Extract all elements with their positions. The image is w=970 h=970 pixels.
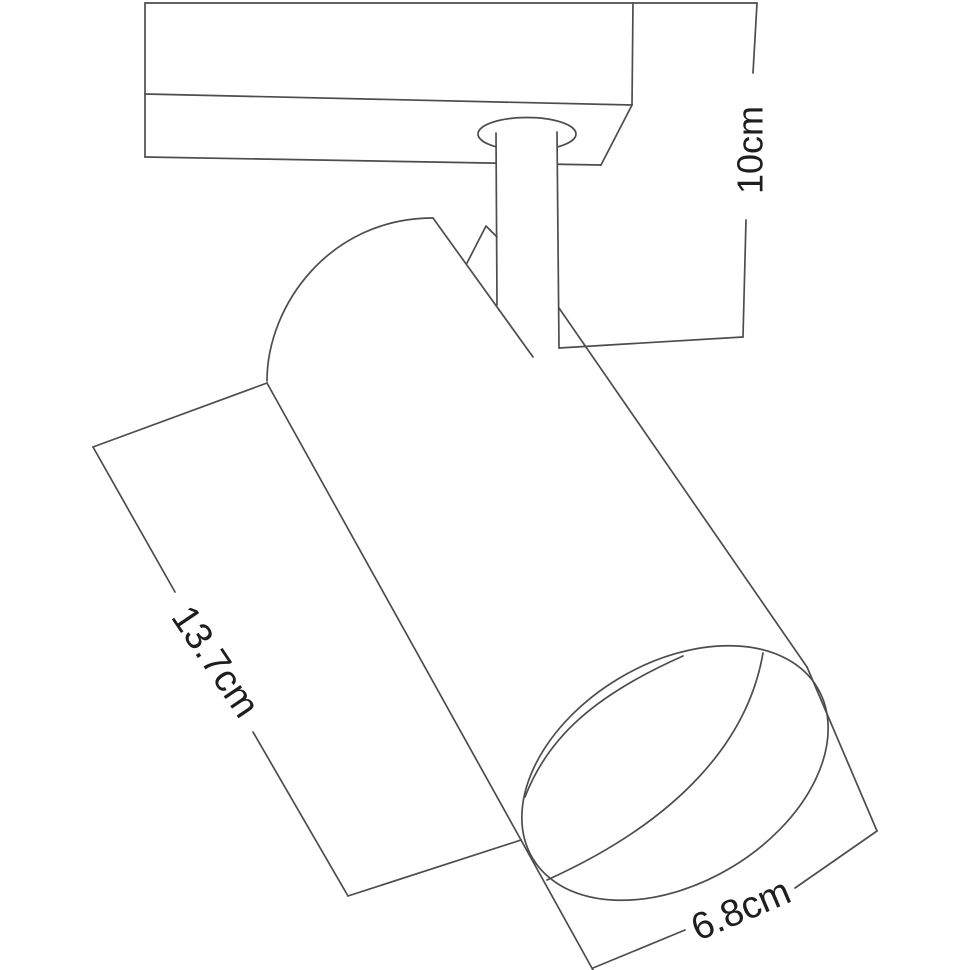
track-right-edge	[632, 3, 633, 105]
length-extension-front	[348, 840, 521, 896]
height-dim-line-top	[753, 3, 757, 73]
body-lower-left-edge	[267, 383, 521, 840]
hinge-notch	[467, 226, 497, 263]
stem-body-fill	[496, 132, 559, 348]
height-dim-line-bottom	[743, 220, 746, 337]
mounting-stem	[496, 132, 559, 348]
height-dimension	[559, 3, 757, 348]
diameter-dim-line-left	[593, 930, 685, 968]
diagram-canvas: 10cm 13.7cm 6.8cm	[0, 0, 970, 970]
track-bevel-edge	[601, 105, 632, 165]
height-extension-bottom	[559, 337, 743, 348]
body-upper-right-edge	[559, 308, 807, 667]
length-dim-line-lower	[253, 732, 348, 896]
body-back-arc	[267, 218, 433, 381]
length-extension-back	[93, 383, 267, 447]
spotlight-dimension-diagram: 10cm 13.7cm 6.8cm	[0, 0, 970, 970]
track-rail	[145, 3, 757, 165]
diameter-dim-line-right	[795, 831, 877, 888]
height-label: 10cm	[730, 106, 771, 194]
length-dimension	[93, 383, 521, 896]
length-dim-line-upper	[93, 447, 175, 592]
track-divider-edge	[145, 94, 632, 105]
lens-face	[476, 593, 874, 953]
stem-left-edge	[496, 133, 497, 305]
length-label: 13.7cm	[163, 599, 268, 726]
